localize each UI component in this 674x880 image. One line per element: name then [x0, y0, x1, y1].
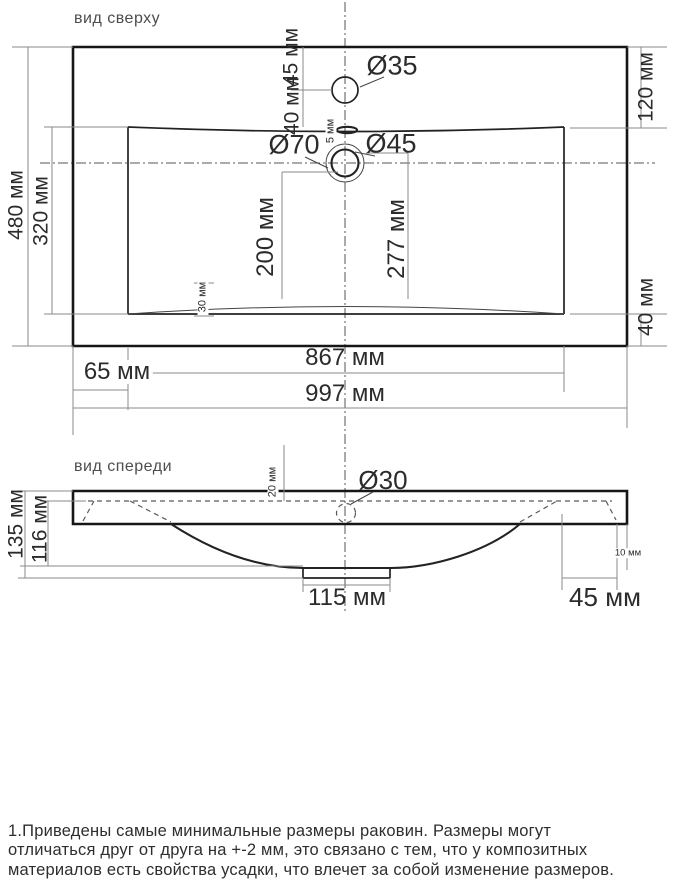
- basin-bottom-slope-curve: [128, 307, 564, 315]
- dim-label-5: 5 мм: [326, 116, 337, 146]
- dim-label-10: 10 мм: [612, 548, 644, 558]
- drawing-linework: [0, 0, 674, 880]
- hidden-edge: [130, 501, 171, 522]
- top-view-outer-rect: [73, 47, 627, 346]
- dim-label-480: 480 мм: [6, 170, 27, 240]
- dim-label-320: 320 мм: [31, 176, 52, 246]
- overflow-slot: [337, 127, 357, 133]
- dim-label-faucet-diameter: Ø35: [366, 53, 417, 80]
- dim-label-drain-outer-diameter: Ø70: [268, 132, 319, 159]
- dim-label-65: 65 мм: [81, 360, 153, 384]
- dim-label-277: 277 мм: [385, 199, 409, 279]
- dim-label-120: 120 мм: [636, 52, 657, 122]
- sink-technical-drawing: вид сверху вид спереди 45 мм 40 мм Ø35 5…: [0, 0, 674, 880]
- hidden-edge: [606, 501, 616, 520]
- dim-label-867: 867 мм: [305, 346, 385, 370]
- dim-label-200: 200 мм: [254, 197, 278, 277]
- dim-label-45-front: 45 мм: [569, 584, 641, 610]
- overflow-hole-circle: [337, 504, 356, 523]
- dim-label-20: 20 мм: [268, 464, 279, 500]
- note-text: 1.Приведены самые минимальные размеры ра…: [8, 822, 614, 880]
- drain-bump: [303, 568, 390, 578]
- note-line-3: материалов есть свойства усадки, что вле…: [8, 861, 614, 880]
- dim-label-40-right: 40 мм: [636, 278, 657, 336]
- note-line-1: 1.Приведены самые минимальные размеры ра…: [8, 822, 614, 841]
- front-view-title: вид спереди: [74, 458, 172, 476]
- dim-label-116: 116 мм: [30, 495, 51, 563]
- dim-label-115: 115 мм: [308, 586, 386, 610]
- dim-label-40-top: 40 мм: [282, 77, 303, 135]
- top-view-title: вид сверху: [74, 10, 160, 28]
- dim-label-30: 30 мм: [198, 279, 209, 315]
- dim-label-overflow-diameter: Ø30: [358, 467, 407, 493]
- dim-label-135: 135 мм: [6, 489, 27, 559]
- hidden-edge: [83, 501, 94, 521]
- hidden-edge: [520, 501, 557, 522]
- dim-label-drain-inner-diameter: Ø45: [365, 131, 416, 158]
- dim-label-997: 997 мм: [305, 382, 385, 406]
- front-view-top-band: [73, 491, 627, 524]
- note-line-2: отличаться друг от друга на +-2 мм, это …: [8, 841, 614, 860]
